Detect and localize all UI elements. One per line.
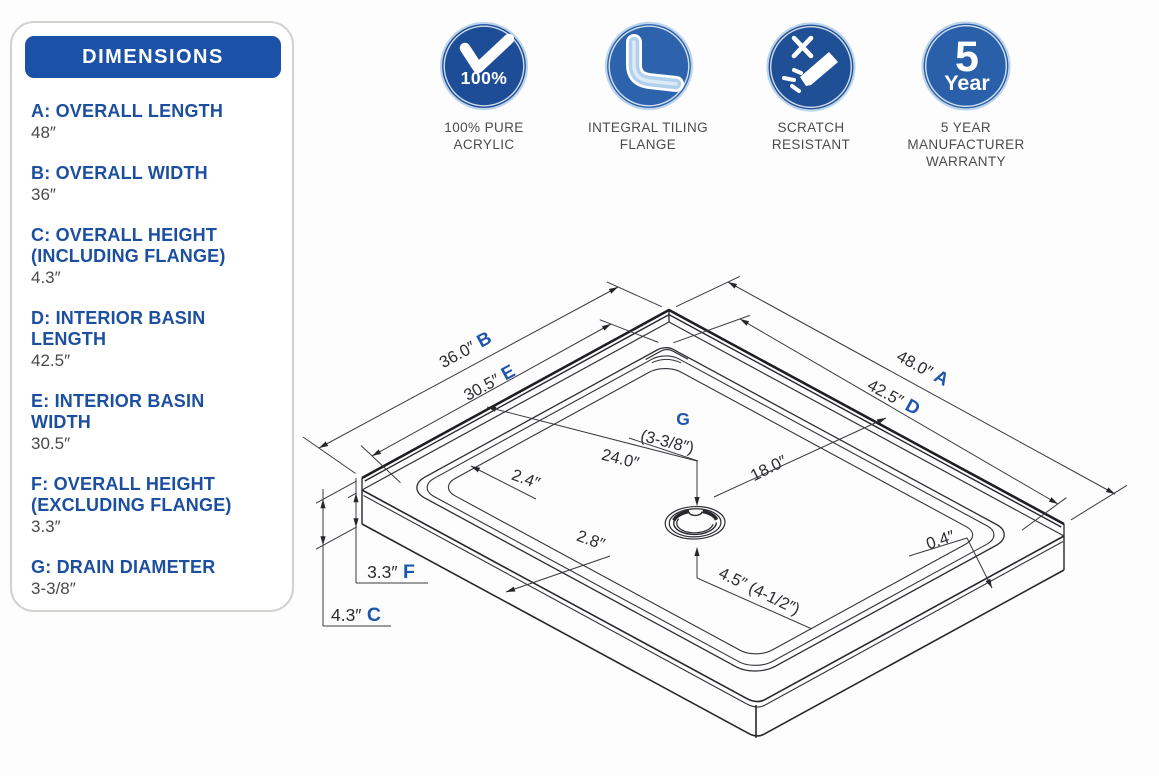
svg-text:3.3″ F: 3.3″ F bbox=[367, 561, 415, 583]
svg-text:4.3″ C: 4.3″ C bbox=[331, 604, 381, 626]
svg-text:18.0″: 18.0″ bbox=[748, 452, 790, 485]
svg-text:G: G bbox=[676, 409, 690, 429]
svg-text:4.5″ (4-1/2″): 4.5″ (4-1/2″) bbox=[716, 564, 803, 619]
svg-text:0.4″: 0.4″ bbox=[924, 527, 957, 553]
svg-text:24.0″: 24.0″ bbox=[600, 446, 641, 473]
svg-text:2.4″: 2.4″ bbox=[509, 466, 542, 493]
svg-text:2.8″: 2.8″ bbox=[574, 527, 607, 554]
svg-text:36.0″ B: 36.0″ B bbox=[435, 327, 495, 372]
svg-text:48.0″ A: 48.0″ A bbox=[894, 345, 953, 390]
svg-text:42.5″ D: 42.5″ D bbox=[864, 374, 924, 419]
